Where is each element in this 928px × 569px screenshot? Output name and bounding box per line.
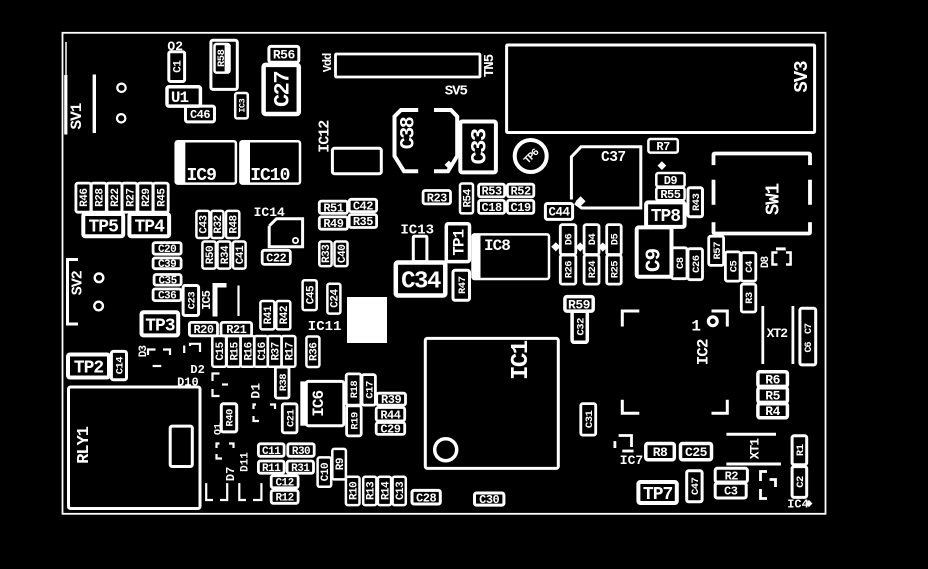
svg-text:IC10: IC10 (250, 166, 289, 186)
svg-text:R8: R8 (653, 445, 668, 460)
svg-text:R56: R56 (273, 48, 296, 63)
svg-text:R2: R2 (725, 469, 739, 483)
svg-text:R23: R23 (427, 191, 447, 205)
svg-text:R45: R45 (156, 188, 168, 207)
svg-text:C36: C36 (158, 291, 176, 303)
svg-text:R14: R14 (380, 481, 392, 500)
svg-text:D10: D10 (177, 376, 199, 390)
svg-text:IC4: IC4 (787, 498, 809, 512)
svg-text:C43: C43 (199, 214, 211, 233)
svg-text:C30: C30 (479, 493, 499, 507)
svg-text:XT1: XT1 (748, 438, 763, 460)
svg-text:IC8: IC8 (484, 237, 510, 255)
svg-text:D11: D11 (239, 452, 251, 472)
svg-text:R33: R33 (321, 244, 333, 263)
svg-text:C1: C1 (172, 60, 184, 73)
svg-text:C22: C22 (266, 251, 286, 265)
svg-text:R9: R9 (335, 458, 347, 470)
svg-text:C46: C46 (190, 108, 210, 122)
svg-text:R11: R11 (262, 463, 281, 475)
svg-text:D7: D7 (224, 467, 238, 481)
svg-text:U1: U1 (171, 89, 189, 107)
svg-text:R18: R18 (349, 381, 361, 399)
svg-text:C2: C2 (795, 476, 807, 488)
svg-text:C17: C17 (364, 381, 376, 399)
svg-text:SV3: SV3 (791, 61, 813, 93)
svg-text:R3: R3 (744, 292, 756, 304)
svg-text:R36: R36 (309, 343, 321, 361)
svg-text:R51: R51 (323, 201, 343, 215)
svg-text:C12: C12 (275, 478, 293, 490)
svg-text:C15: C15 (215, 341, 227, 360)
svg-text:IC1: IC1 (508, 340, 535, 380)
svg-text:C23: C23 (186, 292, 198, 310)
svg-text:R17: R17 (284, 342, 296, 360)
svg-text:R24: R24 (587, 261, 599, 279)
svg-text:Vdd: Vdd (321, 53, 335, 72)
svg-text:XT2: XT2 (767, 326, 789, 341)
svg-text:R27: R27 (125, 189, 137, 207)
svg-text:R58: R58 (216, 49, 228, 67)
svg-text:R53: R53 (482, 185, 502, 199)
svg-text:C8: C8 (675, 257, 687, 269)
svg-text:R57: R57 (712, 242, 724, 260)
svg-text:D8: D8 (760, 256, 772, 269)
svg-text:C10: C10 (320, 463, 332, 481)
svg-text:R48: R48 (228, 214, 240, 233)
svg-text:C38: C38 (397, 117, 420, 149)
svg-text:TP2: TP2 (74, 359, 104, 379)
svg-text:R10: R10 (348, 482, 360, 500)
svg-text:R40: R40 (225, 409, 237, 427)
svg-text:R32: R32 (213, 215, 225, 233)
svg-text:IC7: IC7 (620, 453, 643, 468)
svg-text:IC3: IC3 (237, 98, 247, 112)
svg-text:C32: C32 (575, 318, 587, 336)
svg-text:R12: R12 (275, 493, 293, 505)
svg-text:RLY1: RLY1 (75, 426, 94, 464)
svg-text:IC11: IC11 (308, 319, 342, 335)
svg-text:R43: R43 (691, 193, 703, 211)
svg-text:IC6: IC6 (310, 391, 328, 417)
svg-text:IC9: IC9 (187, 166, 217, 186)
svg-text:C11: C11 (262, 446, 281, 458)
svg-text:IC5: IC5 (200, 290, 214, 309)
svg-text:C29: C29 (380, 422, 400, 436)
svg-text:R6: R6 (765, 373, 780, 388)
svg-text:TN5: TN5 (482, 54, 498, 77)
svg-text:SW1: SW1 (762, 183, 784, 215)
svg-text:R46: R46 (79, 189, 91, 207)
svg-text:C20: C20 (158, 244, 176, 256)
svg-text:R25: R25 (610, 261, 622, 279)
svg-text:R47: R47 (457, 276, 469, 294)
svg-text:D5: D5 (610, 234, 622, 246)
svg-text:R44: R44 (380, 408, 400, 422)
svg-text:C31: C31 (584, 411, 596, 429)
svg-text:1: 1 (691, 317, 701, 335)
svg-text:C6: C6 (804, 342, 815, 353)
svg-text:C7: C7 (804, 323, 815, 334)
svg-text:C28: C28 (416, 491, 436, 505)
svg-text:D6: D6 (564, 234, 576, 246)
svg-text:C18: C18 (482, 201, 502, 215)
svg-text:C45: C45 (305, 285, 317, 304)
svg-text:C24: C24 (330, 289, 342, 308)
svg-text:R29: R29 (141, 189, 153, 207)
svg-text:D9: D9 (664, 174, 678, 188)
svg-text:C4: C4 (744, 261, 756, 273)
svg-text:C34: C34 (401, 269, 441, 296)
svg-text:R39: R39 (381, 393, 401, 407)
svg-text:R5: R5 (765, 389, 780, 404)
svg-text:SV2: SV2 (70, 270, 87, 295)
svg-text:C39: C39 (158, 259, 176, 271)
svg-text:C26: C26 (691, 255, 703, 273)
svg-text:TP4: TP4 (134, 218, 165, 238)
svg-text:C41: C41 (235, 245, 247, 264)
svg-text:R7: R7 (656, 140, 670, 154)
svg-text:R1: R1 (795, 444, 807, 456)
svg-text:TP3: TP3 (145, 316, 175, 336)
svg-text:D1: D1 (249, 383, 264, 399)
svg-text:C47: C47 (690, 477, 702, 495)
svg-text:C33: C33 (468, 128, 493, 164)
svg-text:R54: R54 (462, 188, 474, 207)
svg-text:TP8: TP8 (651, 207, 681, 227)
svg-text:C5: C5 (728, 261, 740, 273)
svg-text:R30: R30 (292, 446, 310, 458)
svg-text:C35: C35 (158, 276, 177, 288)
svg-text:TP5: TP5 (88, 218, 118, 238)
svg-text:C21: C21 (285, 409, 297, 427)
svg-text:IC2: IC2 (694, 339, 712, 365)
svg-text:C25: C25 (685, 445, 708, 460)
svg-text:R49: R49 (323, 217, 343, 231)
svg-text:C37: C37 (601, 150, 626, 166)
svg-text:C40: C40 (337, 245, 349, 263)
svg-text:IC12: IC12 (317, 120, 334, 153)
svg-text:C9: C9 (644, 249, 667, 273)
svg-text:R26: R26 (564, 261, 576, 279)
svg-text:R4: R4 (765, 404, 780, 419)
svg-text:R42: R42 (279, 306, 291, 324)
svg-text:SV1: SV1 (68, 103, 86, 129)
svg-text:C19: C19 (511, 201, 531, 215)
svg-text:R13: R13 (366, 481, 378, 500)
svg-text:C42: C42 (353, 200, 373, 214)
svg-text:R34: R34 (220, 245, 232, 264)
svg-text:R41: R41 (263, 305, 275, 324)
svg-text:SV5: SV5 (445, 83, 468, 99)
svg-text:R52: R52 (511, 185, 531, 199)
svg-text:C27: C27 (271, 72, 296, 107)
svg-text:C14: C14 (115, 357, 127, 375)
svg-text:TP1: TP1 (450, 229, 468, 255)
svg-text:R55: R55 (660, 188, 680, 202)
svg-text:R31: R31 (291, 463, 310, 475)
svg-text:C13: C13 (395, 481, 407, 500)
svg-text:R19: R19 (349, 412, 361, 430)
svg-text:C3: C3 (724, 485, 738, 499)
svg-text:R28: R28 (95, 188, 107, 207)
svg-text:C44: C44 (548, 206, 570, 220)
svg-text:TP7: TP7 (643, 485, 673, 505)
svg-text:R35: R35 (353, 215, 373, 229)
svg-text:R20: R20 (193, 323, 213, 337)
svg-text:R50: R50 (205, 246, 217, 264)
svg-text:R38: R38 (278, 374, 290, 392)
svg-text:R22: R22 (110, 189, 122, 207)
svg-text:D4: D4 (587, 234, 599, 246)
